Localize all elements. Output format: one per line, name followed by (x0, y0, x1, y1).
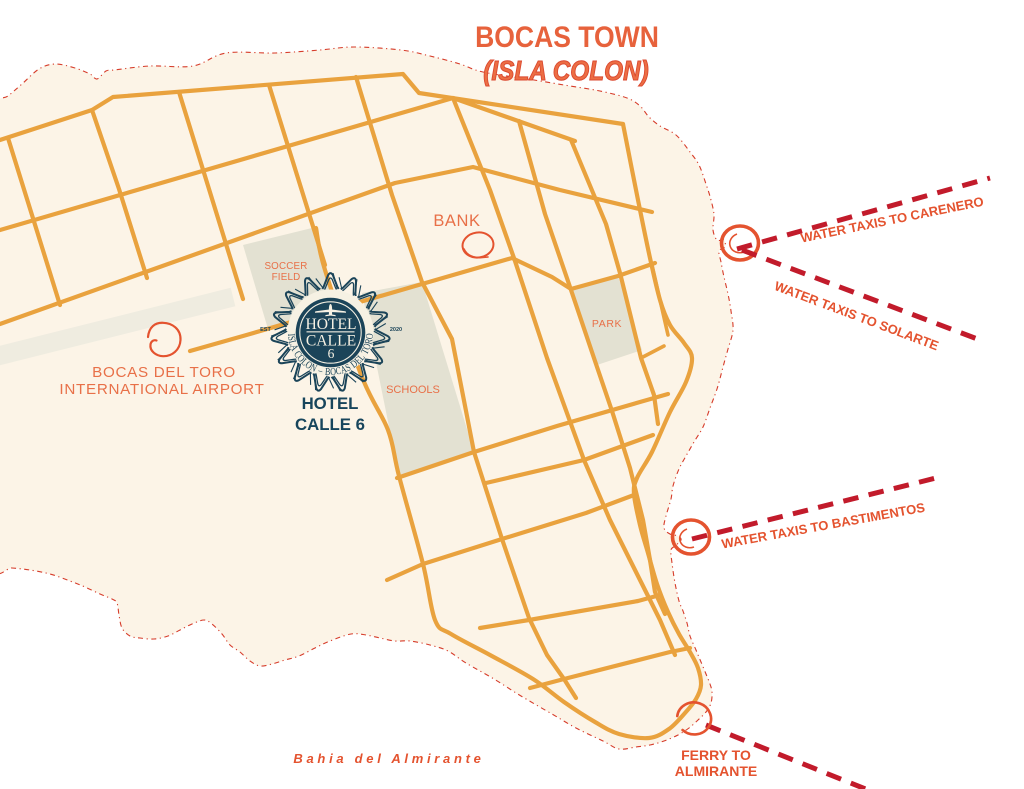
svg-text:SCHOOLS: SCHOOLS (386, 384, 440, 396)
svg-text:HOTEL: HOTEL (302, 394, 359, 413)
svg-text:WATER TAXIS TO CARENERO: WATER TAXIS TO CARENERO (799, 194, 985, 246)
svg-text:HOTEL: HOTEL (305, 316, 356, 333)
svg-text:FERRY TO: FERRY TO (681, 747, 751, 763)
svg-text:BANK: BANK (433, 212, 480, 230)
svg-text:(ISLA COLON): (ISLA COLON) (483, 54, 648, 86)
svg-text:BOCAS DEL TORO: BOCAS DEL TORO (92, 364, 236, 381)
svg-text:2020: 2020 (390, 327, 402, 333)
svg-text:ALMIRANTE: ALMIRANTE (675, 763, 757, 779)
svg-text:INTERNATIONAL AIRPORT: INTERNATIONAL AIRPORT (59, 381, 264, 398)
svg-text:6: 6 (328, 346, 335, 361)
svg-text:BOCAS TOWN: BOCAS TOWN (475, 21, 659, 54)
svg-text:CALLE 6: CALLE 6 (295, 415, 365, 434)
svg-text:FIELD: FIELD (272, 272, 301, 283)
svg-text:EST: EST (260, 327, 271, 333)
svg-text:PARK: PARK (592, 318, 622, 330)
svg-text:Bahia del Almirante: Bahia del Almirante (293, 751, 484, 766)
svg-text:SOCCER: SOCCER (264, 261, 307, 272)
